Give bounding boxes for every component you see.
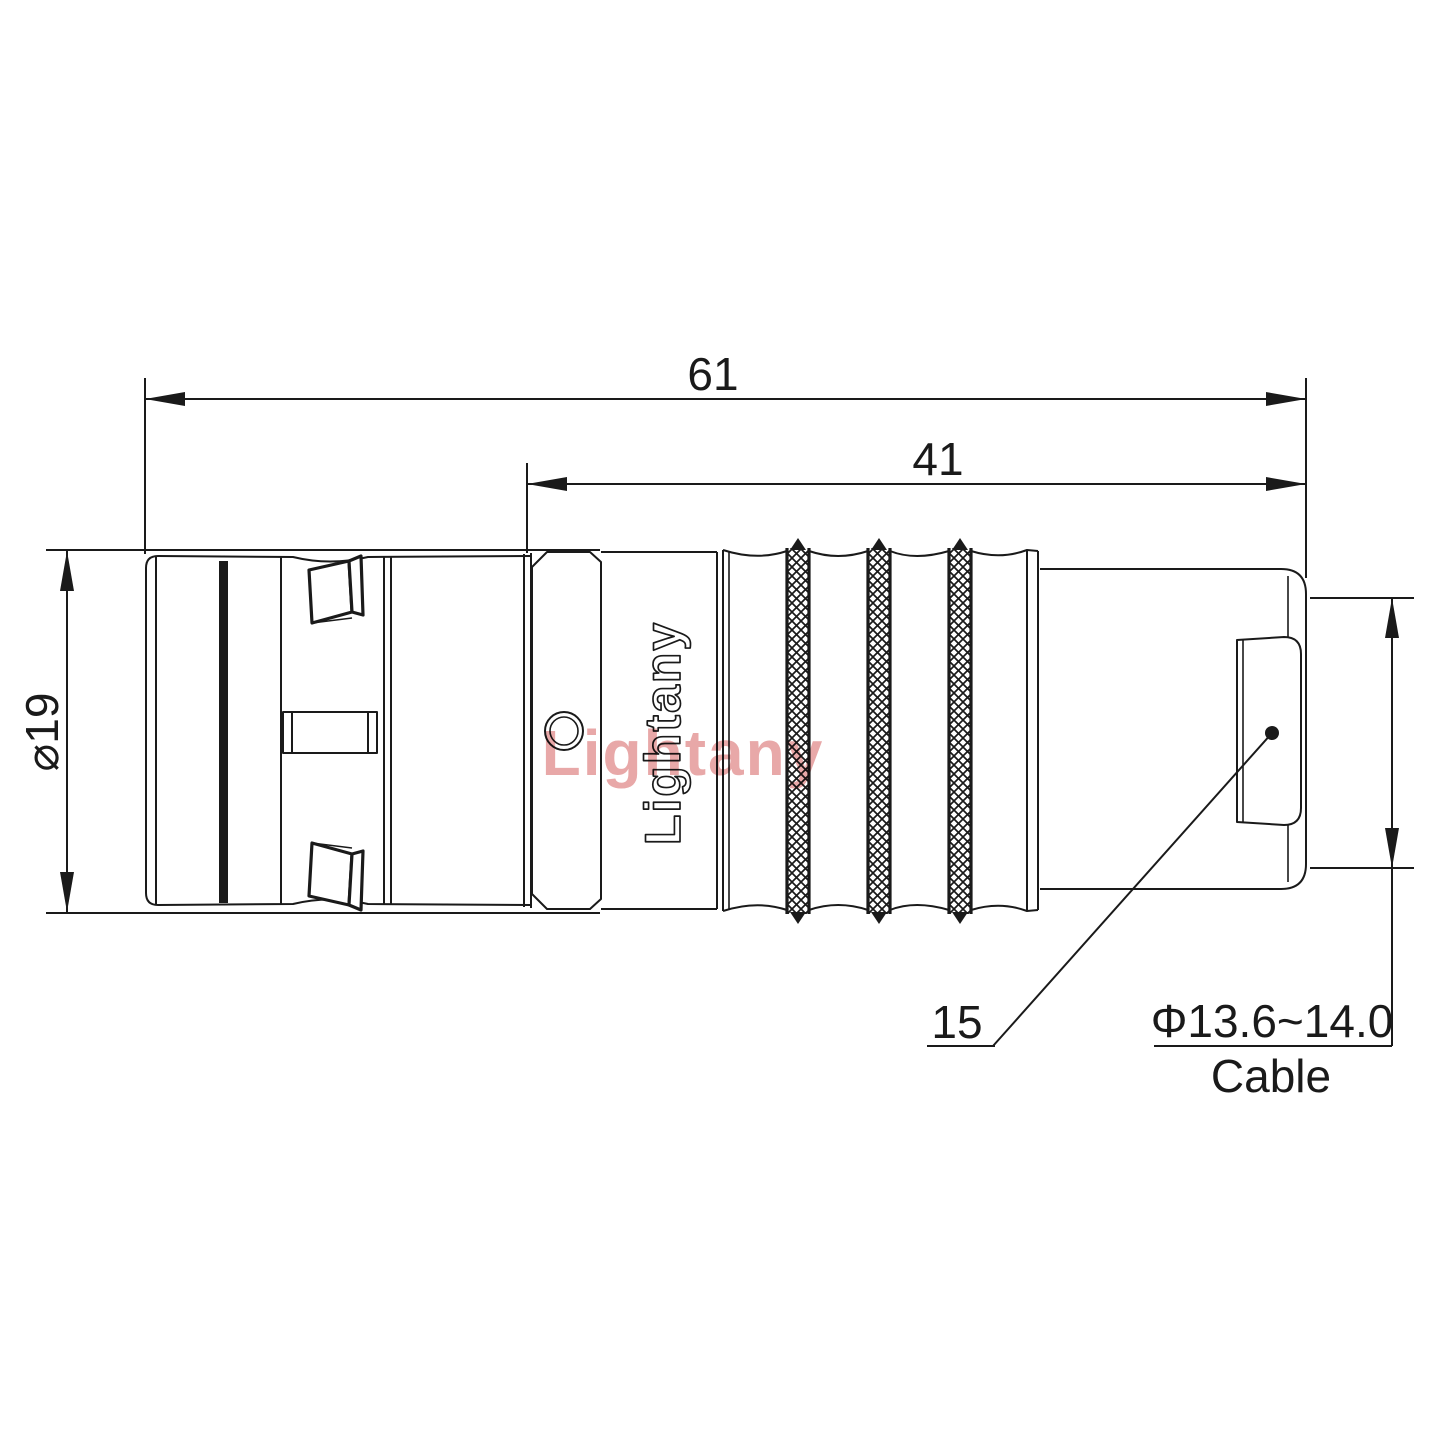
dim-overall-length: 61 — [145, 348, 1306, 578]
dim-rear-length: 41 — [527, 433, 1306, 553]
arrowhead — [1385, 828, 1399, 868]
arrowhead — [527, 477, 567, 491]
knurl-band-2 — [868, 538, 890, 924]
dim-text-61: 61 — [687, 348, 738, 400]
latch-flap-top — [309, 556, 363, 623]
arrowhead — [1266, 477, 1306, 491]
technical-drawing-canvas: Lightany — [0, 0, 1440, 1440]
arrowhead — [60, 551, 74, 591]
cable-word-text: Cable — [1211, 1050, 1331, 1102]
arrowhead — [1385, 598, 1399, 638]
dim-text-d19: ⌀19 — [16, 693, 68, 772]
key-slot — [283, 712, 377, 753]
arrowhead — [145, 392, 185, 406]
part-ref-text: 15 — [931, 996, 982, 1048]
dim-body-diameter: ⌀19 — [16, 550, 600, 913]
arrowhead — [1266, 392, 1306, 406]
connector-technical-drawing: Lightany — [0, 0, 1440, 1440]
arrowhead — [60, 872, 74, 912]
watermark-text: Lightany — [542, 717, 825, 789]
cable-diameter-text: Φ13.6~14.0 — [1151, 995, 1394, 1047]
drawing-root: Lightany — [16, 348, 1414, 1102]
cable-boot — [1040, 569, 1306, 889]
seal-ring-bar — [219, 561, 228, 903]
knurl-band-3 — [949, 538, 971, 924]
dim-text-41: 41 — [912, 433, 963, 485]
front-shell — [146, 553, 531, 910]
